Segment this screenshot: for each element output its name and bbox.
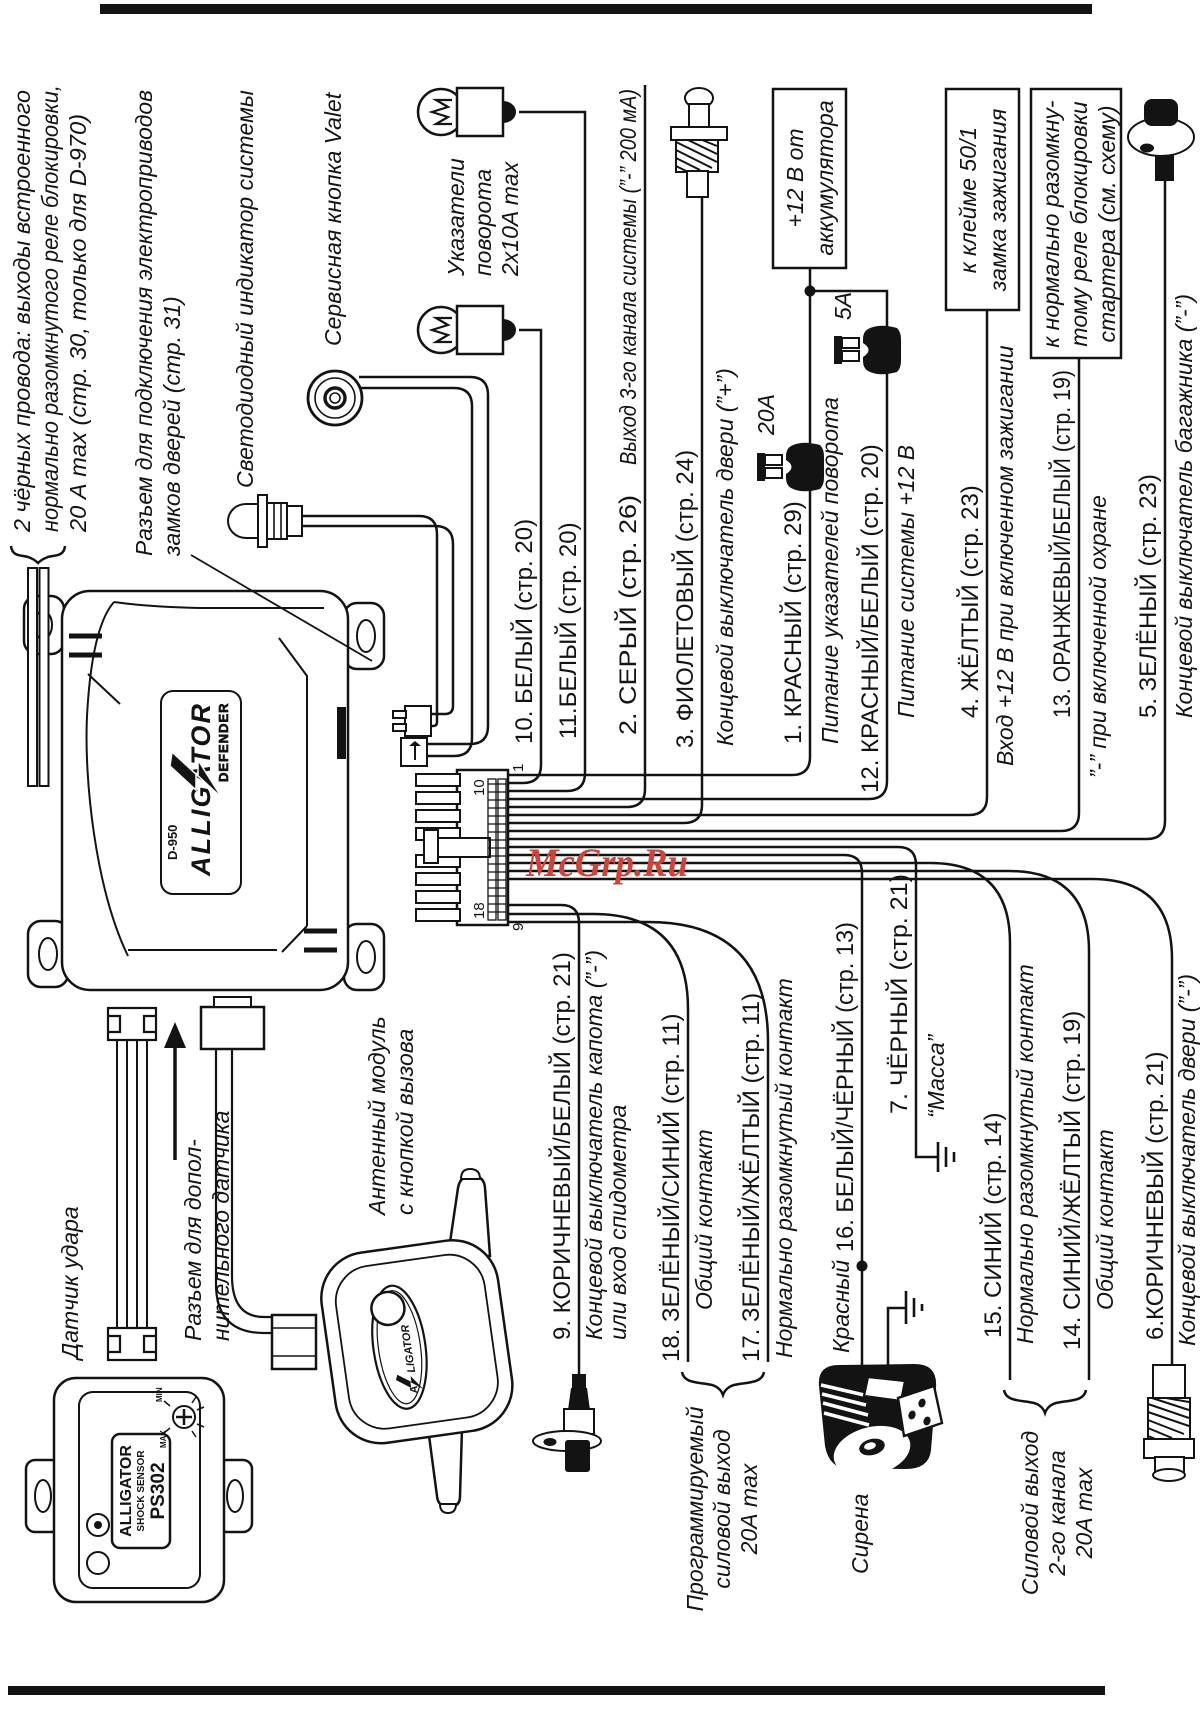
svg-text:4. ЖЁЛТЫЙ (стр. 23): 4. ЖЁЛТЫЙ (стр. 23) [956, 485, 984, 718]
svg-text:+12 В от: +12 В от [782, 128, 808, 227]
svg-text:1. КРАСНЫЙ (стр. 29): 1. КРАСНЫЙ (стр. 29) [779, 501, 807, 744]
svg-text:Концевой выключатель капота (”: Концевой выключатель капота (”-”) [581, 950, 607, 1340]
svg-text:Антенный модуль: Антенный модуль [364, 1016, 390, 1217]
svg-text:20 А max (стр. 30, только для: 20 А max (стр. 30, только для D-970) [65, 114, 91, 533]
svg-text:Указатели: Указатели [443, 158, 469, 277]
svg-text:1: 1 [510, 764, 527, 772]
svg-text:MAX: MAX [159, 1430, 168, 1448]
svg-text:18: 18 [471, 902, 488, 919]
svg-text:Вход +12 В при включенном зажи: Вход +12 В при включенном зажигании [992, 345, 1018, 766]
svg-text:5. ЗЕЛЁНЫЙ (стр. 23): 5. ЗЕЛЁНЫЙ (стр. 23) [1134, 474, 1162, 718]
svg-text:D-950: D-950 [165, 825, 180, 860]
svg-text:McGrp.Ru: McGrp.Ru [525, 840, 688, 885]
svg-text:Концевой выключатель двери (”+: Концевой выключатель двери (”+”) [712, 368, 738, 746]
svg-text:5А: 5А [830, 292, 856, 320]
svg-text:Красный: Красный [828, 1260, 854, 1353]
svg-text:нительного датчика: нительного датчика [208, 1111, 234, 1341]
svg-text:15. СИНИЙ (стр. 14): 15. СИНИЙ (стр. 14) [979, 1113, 1007, 1338]
svg-text:16. БЕЛЫЙ/ЧЁРНЫЙ (стр. 13): 16. БЕЛЫЙ/ЧЁРНЫЙ (стр. 13) [831, 922, 859, 1252]
svg-text:12. КРАСНЫЙ/БЕЛЫЙ (стр. 20): 12. КРАСНЫЙ/БЕЛЫЙ (стр. 20) [856, 444, 884, 793]
svg-text:13. ОРАНЖЕВЫЙ/БЕЛЫЙ (стр. 19): 13. ОРАНЖЕВЫЙ/БЕЛЫЙ (стр. 19) [1048, 370, 1076, 718]
svg-text:с кнопкой вызова: с кнопкой вызова [392, 1029, 418, 1215]
svg-text:Датчик удара: Датчик удара [57, 1206, 83, 1362]
svg-text:2x10A max: 2x10A max [497, 160, 523, 277]
svg-text:Силовой выход: Силовой выход [1017, 1431, 1043, 1595]
svg-text:ALLIGATOR: ALLIGATOR [186, 704, 216, 878]
svg-text:14. СИНИЙ/ЖЁЛТЫЙ (стр. 19): 14. СИНИЙ/ЖЁЛТЫЙ (стр. 19) [1058, 1011, 1086, 1350]
svg-text:аккумулятора: аккумулятора [812, 100, 838, 255]
svg-text:10. БЕЛЫЙ (стр. 20): 10. БЕЛЫЙ (стр. 20) [510, 519, 538, 744]
svg-text:10: 10 [471, 779, 488, 796]
svg-text:9: 9 [510, 923, 527, 931]
svg-text:стартера (см. схему): стартера (см. схему) [1094, 105, 1120, 342]
svg-text:18. ЗЕЛЁНЫЙ/СИНИЙ (стр. 11): 18. ЗЕЛЁНЫЙ/СИНИЙ (стр. 11) [657, 1014, 685, 1362]
svg-text:нормально разомкнутого реле бл: нормально разомкнутого реле блокировки, [37, 85, 63, 532]
svg-text:SHOCK SENSOR: SHOCK SENSOR [136, 1450, 147, 1532]
svg-text:7. ЧЁРНЫЙ (стр. 21): 7. ЧЁРНЫЙ (стр. 21) [885, 874, 913, 1114]
svg-text:Разъем для допол-: Разъем для допол- [180, 1139, 206, 1341]
svg-text:ALLIGATOR: ALLIGATOR [118, 1445, 135, 1537]
svg-text:к клейме 50/1: к клейме 50/1 [955, 127, 981, 273]
svg-text:поворота: поворота [470, 169, 496, 276]
svg-text:тому реле блокировки: тому реле блокировки [1066, 101, 1092, 346]
svg-text:замков дверей (стр. 31): замков дверей (стр. 31) [159, 296, 185, 557]
svg-text:силовой выход: силовой выход [709, 1429, 735, 1588]
svg-text:2. СЕРЫЙ (стр. 26): 2. СЕРЫЙ (стр. 26) [614, 495, 642, 735]
svg-text:DEFENDER: DEFENDER [216, 702, 231, 782]
svg-text:Сирена: Сирена [847, 1494, 873, 1574]
svg-text:“Масса”: “Масса” [923, 1033, 949, 1118]
svg-text:PS302: PS302 [148, 1462, 169, 1519]
svg-text:”-” при включенной охране: ”-” при включенной охране [1085, 495, 1111, 778]
svg-text:2-го канала: 2-го канала [1044, 1450, 1070, 1576]
svg-text:Программируемый: Программируемый [682, 1406, 708, 1611]
svg-text:Концевой выключатель двери (”-: Концевой выключатель двери (”-”) [1174, 974, 1200, 1346]
svg-text:MIN: MIN [155, 1387, 164, 1402]
svg-text:Питание системы +12 В: Питание системы +12 В [893, 445, 919, 718]
svg-text:6.КОРИЧНЕВЫЙ (стр. 21): 6.КОРИЧНЕВЫЙ (стр. 21) [1141, 1051, 1169, 1340]
svg-text:Нормально разомкнутый контакт: Нормально разомкнутый контакт [1012, 964, 1038, 1344]
svg-text:9. КОРИЧНЕВЫЙ/БЕЛЫЙ (стр. 21): 9. КОРИЧНЕВЫЙ/БЕЛЫЙ (стр. 21) [548, 952, 576, 1340]
svg-text:Разъем для подключения электро: Разъем для подключения электроприводов [131, 90, 157, 556]
svg-text:20А max: 20А max [736, 1462, 762, 1555]
svg-text:Нормально разомкнутый контакт: Нормально разомкнутый контакт [771, 978, 797, 1358]
svg-text:2 чёрных провода: выходы встро: 2 чёрных провода: выходы встроенного [9, 90, 35, 533]
svg-text:20А max: 20А max [1071, 1466, 1097, 1559]
svg-text:Концевой выключатель багажника: Концевой выключатель багажника (”-”) [1171, 294, 1197, 718]
svg-text:11.БЕЛЫЙ (стр. 20): 11.БЕЛЫЙ (стр. 20) [554, 522, 582, 739]
svg-text:Сервисная кнопка Valet: Сервисная кнопка Valet [320, 91, 346, 346]
svg-text:17. ЗЕЛЁНЫЙ/ЖЁЛТЫЙ (стр. 11): 17. ЗЕЛЁНЫЙ/ЖЁЛТЫЙ (стр. 11) [737, 993, 765, 1362]
svg-text:3. ФИОЛЕТОВЫЙ (стр. 24): 3. ФИОЛЕТОВЫЙ (стр. 24) [671, 450, 699, 748]
svg-text:или вход спидометра: или вход спидометра [605, 1105, 631, 1340]
svg-text:замка зажигания: замка зажигания [985, 109, 1011, 292]
svg-text:20А: 20А [753, 394, 779, 436]
svg-text:к нормально разомкну-: к нормально разомкну- [1038, 100, 1064, 348]
svg-text:Выход 3-го канала системы (”-”: Выход 3-го канала системы (”-” 200 мА) [615, 89, 641, 465]
svg-text:Светодиодный индикатор системы: Светодиодный индикатор системы [232, 90, 258, 488]
svg-text:Общий контакт: Общий контакт [691, 1129, 717, 1310]
svg-text:Общий контакт: Общий контакт [1092, 1129, 1118, 1310]
